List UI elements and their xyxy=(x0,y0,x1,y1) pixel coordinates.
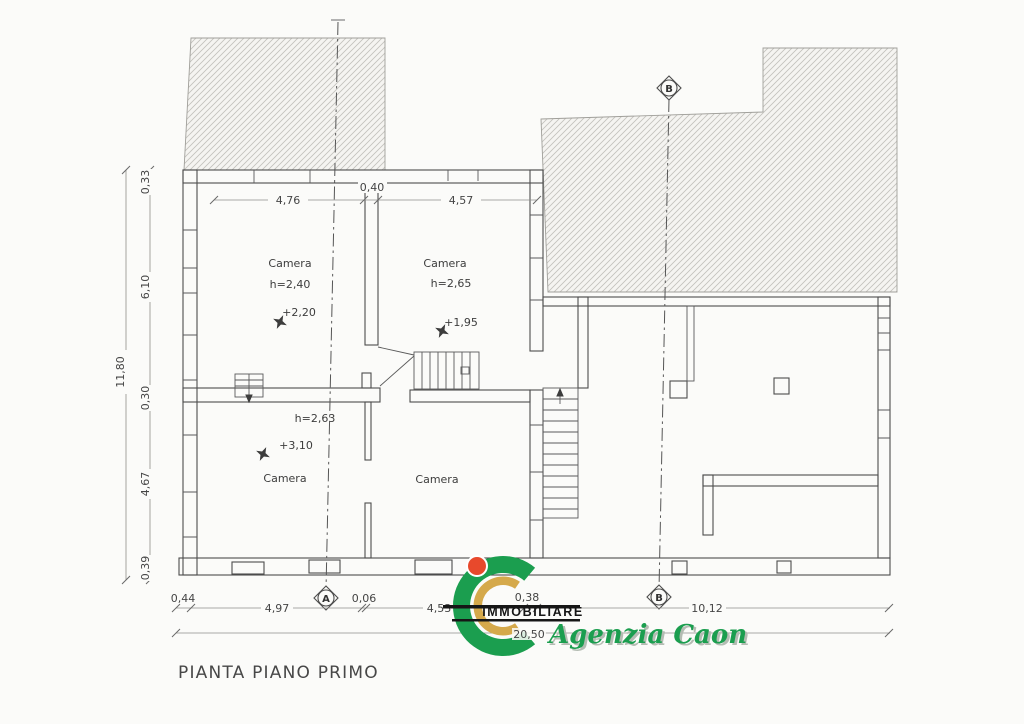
room-upper-left-level: +2,20 xyxy=(282,306,316,319)
dim-left-seg-4: 4,67 xyxy=(139,472,152,497)
external-stair-treads xyxy=(543,399,578,509)
dim-bottom-seg-6: 10,12 xyxy=(691,602,723,615)
wall-pillar xyxy=(777,561,791,573)
dim-bottom-seg-5: 0,38 xyxy=(515,591,540,604)
room-lower-left-level: +3,10 xyxy=(279,439,313,452)
room-lower-left-height: h=2,63 xyxy=(295,412,336,425)
wall-right-lower xyxy=(530,390,543,558)
dimensions-left: 11,80 0,33 6,10 0,30 4,67 0,39 xyxy=(114,166,156,584)
room-labels: Camera h=2,40 +2,20 Camera h=2,65 +1,95 … xyxy=(255,257,478,486)
wall-left xyxy=(183,170,197,575)
room-upper-right-name: Camera xyxy=(423,257,466,270)
dim-left-seg-5: 0,39 xyxy=(139,556,152,581)
axis-b-bottom-label: B xyxy=(655,593,663,604)
room-upper-right-height: h=2,65 xyxy=(431,277,472,290)
logo-brand-text: IMMOBILIARE xyxy=(482,605,584,619)
stair-risers xyxy=(422,352,470,389)
room-upper-left-height: h=2,40 xyxy=(270,278,311,291)
dim-left-seg-3: 0,30 xyxy=(139,386,152,411)
hatched-area-top-right xyxy=(541,48,897,292)
room-upper-right-level: +1,95 xyxy=(444,316,478,329)
dim-bottom-seg-3: 0,06 xyxy=(352,592,377,605)
terrace-edge-wall xyxy=(687,306,694,381)
dim-left-total: 11,80 xyxy=(114,356,127,388)
external-stair-outline xyxy=(543,388,578,518)
terrace-wall-top xyxy=(543,297,890,306)
terrace-pillar-2 xyxy=(774,378,789,394)
wall-right-upper xyxy=(530,170,543,351)
dim-bottom-seg-2: 4,97 xyxy=(265,602,290,615)
hatched-area-top-left xyxy=(184,38,385,170)
external-stair xyxy=(543,388,578,518)
dim-top-wall: 0,40 xyxy=(360,181,385,194)
dim-left-seg-2: 6,10 xyxy=(139,275,152,300)
wall-middle-left xyxy=(183,388,380,402)
dim-top-seg-1: 4,76 xyxy=(276,194,301,207)
dim-bottom-seg-1: 0,44 xyxy=(171,592,196,605)
hatched-roof-areas xyxy=(184,38,897,292)
terrace-wall-ticks xyxy=(878,318,890,438)
room-lower-right-name: Camera xyxy=(415,473,458,486)
terrace-walls xyxy=(543,297,890,558)
logo-red-dot xyxy=(467,556,487,576)
dim-top-seg-2: 4,57 xyxy=(449,194,474,207)
stair-diagonals xyxy=(378,347,414,386)
floor-plan-drawing: A B B 11,80 0,33 6,10 0,30 4,67 0,39 4,7… xyxy=(0,0,1024,724)
agency-name: Agenzia Caon xyxy=(546,620,747,650)
wall-divider-lower-2 xyxy=(365,503,371,558)
mini-stair-arrow xyxy=(246,395,252,402)
axis-b-top-label: B xyxy=(665,84,673,95)
room-lower-left-name: Camera xyxy=(263,472,306,485)
wall-divider-lower-1 xyxy=(365,402,371,460)
stair-shaft-wall xyxy=(578,297,588,388)
scanned-floor-plan-page: A B B 11,80 0,33 6,10 0,30 4,67 0,39 4,7… xyxy=(0,0,1024,724)
external-stair-arrow xyxy=(557,389,563,396)
wall-middle-stub xyxy=(362,373,371,388)
terrace-l-wall-horizontal xyxy=(703,475,878,486)
wall-joint-ticks xyxy=(183,170,543,537)
dim-bottom-total: 20,50 xyxy=(513,628,545,641)
terrace-pillar-1 xyxy=(670,381,687,398)
terrace-l-wall-vertical xyxy=(703,475,713,535)
wall-pillar xyxy=(232,562,264,574)
terrace-wall-right xyxy=(878,297,890,558)
dim-left-seg-1: 0,33 xyxy=(139,170,152,195)
axis-a-label: A xyxy=(322,594,330,605)
mini-stair-lines xyxy=(235,374,263,398)
interior-stair xyxy=(378,347,479,389)
level-marker-star xyxy=(255,446,271,462)
wall-pillar xyxy=(415,560,452,574)
room-upper-left-name: Camera xyxy=(268,257,311,270)
wall-pillar xyxy=(672,561,687,574)
wall-pillar xyxy=(309,560,340,573)
dimensions-top: 4,76 0,40 4,57 xyxy=(210,181,541,207)
wall-middle-right xyxy=(410,390,530,402)
wall-divider-upper xyxy=(365,183,378,345)
drawing-title: PIANTA PIANO PRIMO xyxy=(178,663,379,683)
